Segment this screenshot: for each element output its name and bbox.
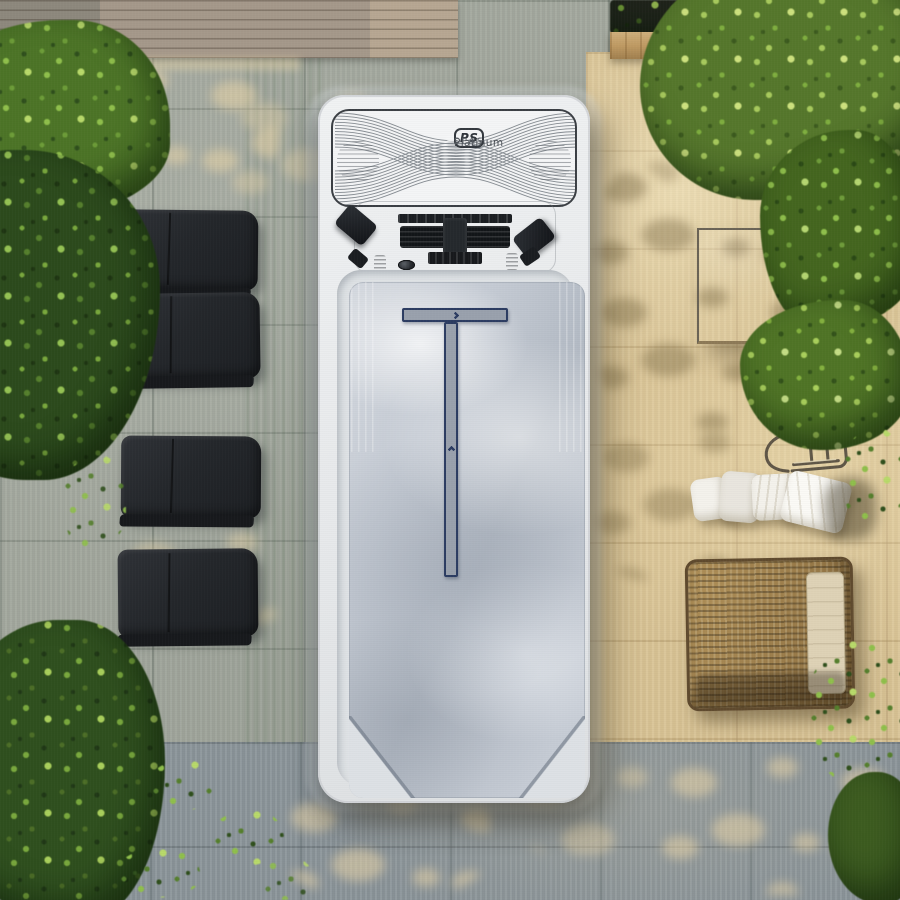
jet-core xyxy=(443,218,467,254)
brand-logo: PS Platinum SPAS xyxy=(446,135,462,141)
leaf-branch xyxy=(808,640,900,780)
water-jet xyxy=(398,260,415,270)
sun-lounger xyxy=(121,436,262,519)
wall-ridges-right xyxy=(559,282,583,452)
leaf-branch xyxy=(62,455,126,550)
swim-spa: PS Platinum SPAS xyxy=(318,95,590,803)
jet-block-left xyxy=(400,226,446,248)
corner-chamfer-left xyxy=(349,716,421,798)
swim-lane-stem xyxy=(444,322,458,577)
sun-lounger xyxy=(118,548,259,637)
leaf-branch xyxy=(262,858,314,900)
jet-block-right xyxy=(464,226,510,248)
leaf-branch xyxy=(212,810,284,866)
leaf-branch xyxy=(842,428,900,528)
aerial-patio-scene: PS Platinum SPAS xyxy=(0,0,900,900)
leaf-branch xyxy=(118,848,200,898)
corner-chamfer-right xyxy=(513,716,585,798)
wave-stripes-left xyxy=(337,141,379,181)
hedge xyxy=(0,150,160,480)
chevron-up-icon xyxy=(447,446,454,453)
spa-cover-pillow: PS Platinum SPAS xyxy=(331,109,577,207)
spa-basin xyxy=(337,270,573,786)
chevron-right-icon xyxy=(451,311,458,318)
water-surface xyxy=(349,282,585,798)
leaf-branch xyxy=(150,760,212,812)
wall-ridges-left xyxy=(351,282,375,452)
jet-assembly xyxy=(398,210,512,264)
wave-stripes-right xyxy=(529,141,571,181)
swim-lane-bar xyxy=(402,308,508,322)
